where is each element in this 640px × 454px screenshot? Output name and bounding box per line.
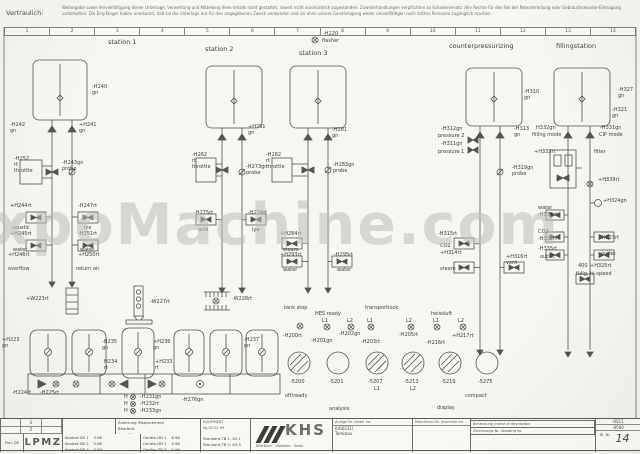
schematic-label: -H200rt [283,333,302,339]
schematic-label: -5216 [441,379,456,385]
rinser-tank-row [30,328,278,378]
schematic-label: 400 [578,263,588,269]
schematic-label: +H217rt [452,333,474,339]
drawing-header: Zeichnungs-Nr. /drawing no. [471,428,595,435]
schematic-label: -H323rt [600,235,619,241]
schematic-label: +W223rt [26,296,49,302]
machine-header: Maschinen-Nr. /machine no. [413,419,470,426]
schematic-label: -H262 rt throttle [192,152,211,170]
schematic-label: -H242 gn [10,122,25,134]
schematic-label: -H202gn [339,331,360,337]
schematic-label: -H282 rt throttle [266,152,285,170]
schematic-label: -H237 gn [244,337,259,349]
khs-logo: KHS Klöckner · Holstein · Seitz [250,419,332,452]
schematic-label: -H220 [323,31,338,37]
schematic-label: -H281 gn [332,127,347,139]
name-column: Benennung /name of description Zeichnung… [470,419,595,452]
schematic-label: -5275 [478,379,493,385]
schematic-label: L2 [458,318,464,324]
schematic-label: -H233gn [140,408,161,414]
schematic-label: -H252 rt throttle [14,156,33,174]
schematic-label: L2 [347,318,353,324]
schematic-label: H [124,394,128,400]
schematic-label: -H243gn probe [62,160,83,172]
schematic-label: -H203rt [361,339,380,345]
sign-date: Kg 07.01.99 [201,425,250,431]
schematic-label: -5213 [404,379,419,385]
schematic-label: H332gn [536,125,556,131]
schematic-label: tank stop [284,305,307,311]
notice-line-2: Die Empfänger haben anerkannt, daß sie d… [89,11,492,16]
ruler-zone-cell: 7 [275,28,320,35]
ruler-zone-cell: 1 [5,28,50,35]
titleblock-row: Konbat DB 3 5.99 [65,447,138,452]
scanned-schematic-sheet: Vertraulich: Weitergabe sowie Vervielfäl… [0,0,640,454]
schematic-label: +H233 rt [155,359,173,371]
schematic-label: L1 [322,318,328,324]
schematic-label: L1 [374,386,380,392]
schematic-label: +H333rt [534,149,556,155]
titleblock-row: Standard-TB 2: 63.3 [203,442,248,448]
schematic-label: pressure 1 [438,149,464,155]
schematic-label: -W227rt [150,299,170,305]
order-header: Anlage Nr. /order no. [333,419,412,426]
schematic-label: CIP mode [599,132,623,138]
schematic-label: -5200 [290,379,305,385]
ruler-zone-cell: 6 [230,28,275,35]
schematic-label: -H224rt [12,390,31,396]
khs-wedges-icon [256,426,282,443]
spray-nozzle-icon [126,286,152,324]
schematic-label: outlet [601,251,616,257]
schematic-label: H234 rt [104,359,117,371]
schematic-label: water [283,267,297,273]
schematic-label: heissluft [431,311,452,317]
standards-column: Standard-TB 1: 63.1Standard-TB 2: 63.3 [200,434,250,452]
schematic-label: -H232rt [140,401,159,407]
schematic-label: +H261 gn [248,124,266,136]
schematic-label: analysis [329,406,349,412]
titleblock-row [42,419,62,427]
revision-spacer [62,419,115,434]
watermark-text: ExpoMachine.com [0,192,560,258]
sheet-number-label: Bl. Nr. [598,432,612,438]
schematic-label: -H283gn probe [333,162,354,174]
schematic-label: display [437,405,455,411]
schematic-label: station 1 [108,39,137,47]
schematic-label: -W228rt [232,296,252,302]
schematic-label: -H205rt [399,332,418,338]
ruler-zone-cell: 9 [366,28,411,35]
schematic-label: fillingstation [556,43,596,51]
schematic-label: +H325rt [590,263,612,269]
schematic-label: -H331gn [600,125,621,131]
schematic-label: L1 [433,318,439,324]
schematic-label: -H216rt [426,340,445,346]
ruler-zone-cell: 11 [456,28,501,35]
schematic-label: off/ready [285,393,307,399]
equipment-cell: EQUIPMENT Kg 07.01.99 [200,419,250,434]
titleblock-row: S [21,419,41,427]
schematic-label: station 3 [299,50,328,58]
geraete-column: Geräte-DB 1 8.98Geräte-DB 2 9.98Geräte-D… [140,434,200,452]
schematic-label: overflow [8,266,29,272]
schematic-label: L2 [410,386,416,392]
schematic-label: +H324gn [603,198,627,204]
heat-exchanger-icon [66,288,78,314]
ruler-zone-cell: 5 [185,28,230,35]
khs-brand-subtitle: Klöckner · Holstein · Seitz [256,444,303,448]
doc-code-column: -0SC1 -0500 Bl. Nr. 14 [595,419,640,452]
schematic-label: -H312gn [441,126,462,132]
schematic-label: -5201 [329,379,344,385]
schematic-label: -H327 gn [618,87,633,99]
ruler-zone-cell: 10 [411,28,456,35]
schematic-label: -H310 gn [524,89,539,101]
sheet-number: 14 [615,432,629,445]
schematic-label: -H321 gn [612,107,627,119]
schematic-label: +H339rt [598,177,620,183]
lamp-legend-icons [131,395,136,414]
schematic-label: station 2 [205,46,234,54]
title-block: SZ Plan DB LPMZ Änderung /ReplacementBea… [0,418,640,451]
indicator-lamps [297,323,466,330]
ruler-zone-cell: 3 [95,28,140,35]
schematic-label: -H276gn [182,397,203,403]
schematic-label: filling mode [532,132,561,138]
ruler-zone-cell: 4 [140,28,185,35]
schematic-label: H [124,401,128,407]
khs-brand: KHS [285,421,326,439]
schematic-label: -H225rt [40,390,59,396]
titleblock-row [1,427,21,435]
schematic-label: pressure 2 [438,133,464,139]
machine-column: Maschinen-Nr. /machine no. [412,419,470,452]
titleblock-row: Geräte-DB 3 9.99 [143,447,198,452]
legend-strip [28,374,280,394]
confidentiality-notice: Weitergabe sowie Vervielfältigung dieser… [62,5,634,22]
schematic-label: -H201gn [311,338,332,344]
tank-filling [554,68,610,126]
titleblock-row [1,419,21,427]
ruler-zone-cell: 14 [591,28,635,35]
schematic-label: +H236 gn [153,339,171,351]
schematic-label: -H319gn probe [512,165,533,177]
ruler-zone-cell: 2 [50,28,95,35]
plan-db-label: Plan DB [0,434,23,452]
schematic-label: füllg. hi-speed [576,271,612,277]
schematic-label: flasher [322,38,339,44]
order-name: Tomislav [333,431,412,436]
schematic-label: water [337,267,351,273]
schematic-label: compact [465,393,487,399]
flasher-lamp-icon [312,37,318,43]
selector-switches [288,352,498,374]
radiator-icon [204,292,230,310]
order-column: Anlage Nr. /order no. IU60231/ Tomislav [332,419,412,452]
confidential-label: Vertraulich: [6,9,43,17]
schematic-label: +H223 gn [2,337,20,349]
schematic-label: transportlock [365,305,398,311]
titleblock-row: Z [21,427,41,435]
schematic-label: -5207 [368,379,383,385]
schematic-label: +H241 gn [79,122,97,134]
schematic-label: -H311gn [441,141,462,147]
schematic-label: return air [76,266,99,272]
drawing-zone-ruler: 1234567891011121314 [4,27,636,36]
change-column: Änderung /ReplacementBearbeit.Geprüft [115,419,200,434]
schematic-label: -H240 gn [92,84,107,96]
schematic-label: -H313 gn [514,126,529,138]
schematic-label: -H235 gn [102,339,117,351]
ruler-zone-cell: 13 [546,28,591,35]
konbat-column: Konbat DB 1 3.98Konbat DB 2 5.98Konbat D… [62,434,140,452]
titleblock-row [42,427,62,435]
ruler-zone-cell: 12 [501,28,546,35]
schematic-label: L1 [367,318,373,324]
schematic-label: H [124,408,128,414]
tank-station-3 [290,66,346,128]
schematic-label: -H231gn [140,394,161,400]
schematic-label: counterpressurizing [449,43,514,51]
schematic-label: L2 [406,318,412,324]
schematic-label: steam [440,266,456,272]
revision-grid: SZ [0,419,62,434]
schematic-label: HES ready [315,311,341,317]
schematic-label: -H273gn probe [246,164,267,176]
name-header: Benennung /name of description [471,420,595,428]
tank-counterpressure [466,68,522,126]
schematic-label: filter [594,149,606,155]
tank-station-2 [206,66,262,128]
machine-code: LPMZ [23,434,62,452]
tank-station-1 [33,60,87,120]
